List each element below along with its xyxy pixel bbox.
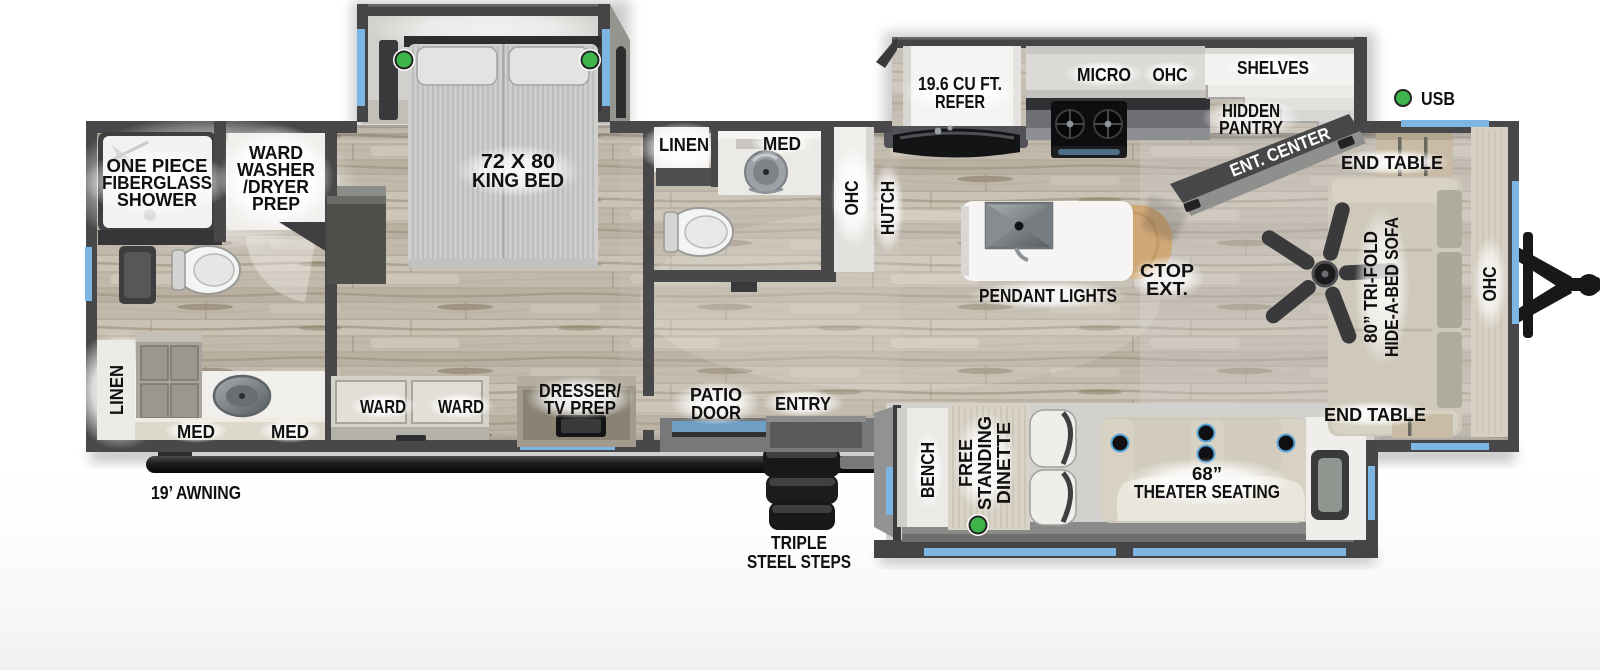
svg-text:HIDE-A-BED SOFA: HIDE-A-BED SOFA [1382, 217, 1402, 357]
svg-text:LINEN: LINEN [659, 135, 709, 155]
svg-text:MED: MED [763, 134, 801, 154]
svg-text:19.6 CU FT.: 19.6 CU FT. [918, 74, 1002, 94]
svg-text:PANTRY: PANTRY [1219, 118, 1283, 138]
svg-text:OHC: OHC [1480, 267, 1500, 302]
svg-text:MED: MED [271, 422, 309, 442]
svg-text:END TABLE: END TABLE [1341, 153, 1443, 173]
svg-text:REFER: REFER [935, 92, 985, 112]
svg-text:EXT.: EXT. [1146, 279, 1188, 299]
svg-text:USB: USB [1421, 89, 1455, 109]
svg-text:DINETTE: DINETTE [994, 422, 1014, 504]
svg-text:MICRO: MICRO [1077, 65, 1131, 85]
svg-text:KING BED: KING BED [472, 170, 564, 192]
svg-text:68”: 68” [1192, 464, 1222, 484]
svg-text:SHELVES: SHELVES [1237, 58, 1309, 78]
svg-text:OHC: OHC [1153, 65, 1188, 85]
svg-text:DOOR: DOOR [691, 403, 741, 423]
svg-text:OHC: OHC [842, 181, 862, 216]
svg-text:MED: MED [177, 422, 215, 442]
svg-text:FREE: FREE [956, 439, 976, 487]
svg-text:WARD: WARD [360, 397, 406, 417]
svg-text:ENTRY: ENTRY [775, 394, 831, 414]
svg-text:WARD: WARD [438, 397, 484, 417]
svg-text:END TABLE: END TABLE [1324, 405, 1426, 425]
svg-text:PENDANT LIGHTS: PENDANT LIGHTS [979, 286, 1117, 306]
svg-text:BENCH: BENCH [918, 442, 938, 498]
svg-text:LINEN: LINEN [107, 365, 127, 415]
svg-text:THEATER SEATING: THEATER SEATING [1134, 482, 1280, 502]
svg-text:PATIO: PATIO [690, 385, 742, 405]
svg-text:PREP: PREP [252, 194, 300, 214]
svg-text:STANDING: STANDING [975, 416, 995, 510]
svg-text:19’ AWNING: 19’ AWNING [151, 483, 241, 503]
svg-text:STEEL STEPS: STEEL STEPS [747, 552, 851, 572]
svg-text:HUTCH: HUTCH [878, 181, 898, 235]
svg-text:80” TRI-FOLD: 80” TRI-FOLD [1361, 231, 1381, 343]
svg-text:TV PREP: TV PREP [544, 398, 616, 418]
svg-text:SHOWER: SHOWER [117, 190, 197, 210]
svg-text:TRIPLE: TRIPLE [771, 533, 827, 553]
svg-text:CTOP: CTOP [1140, 261, 1194, 281]
